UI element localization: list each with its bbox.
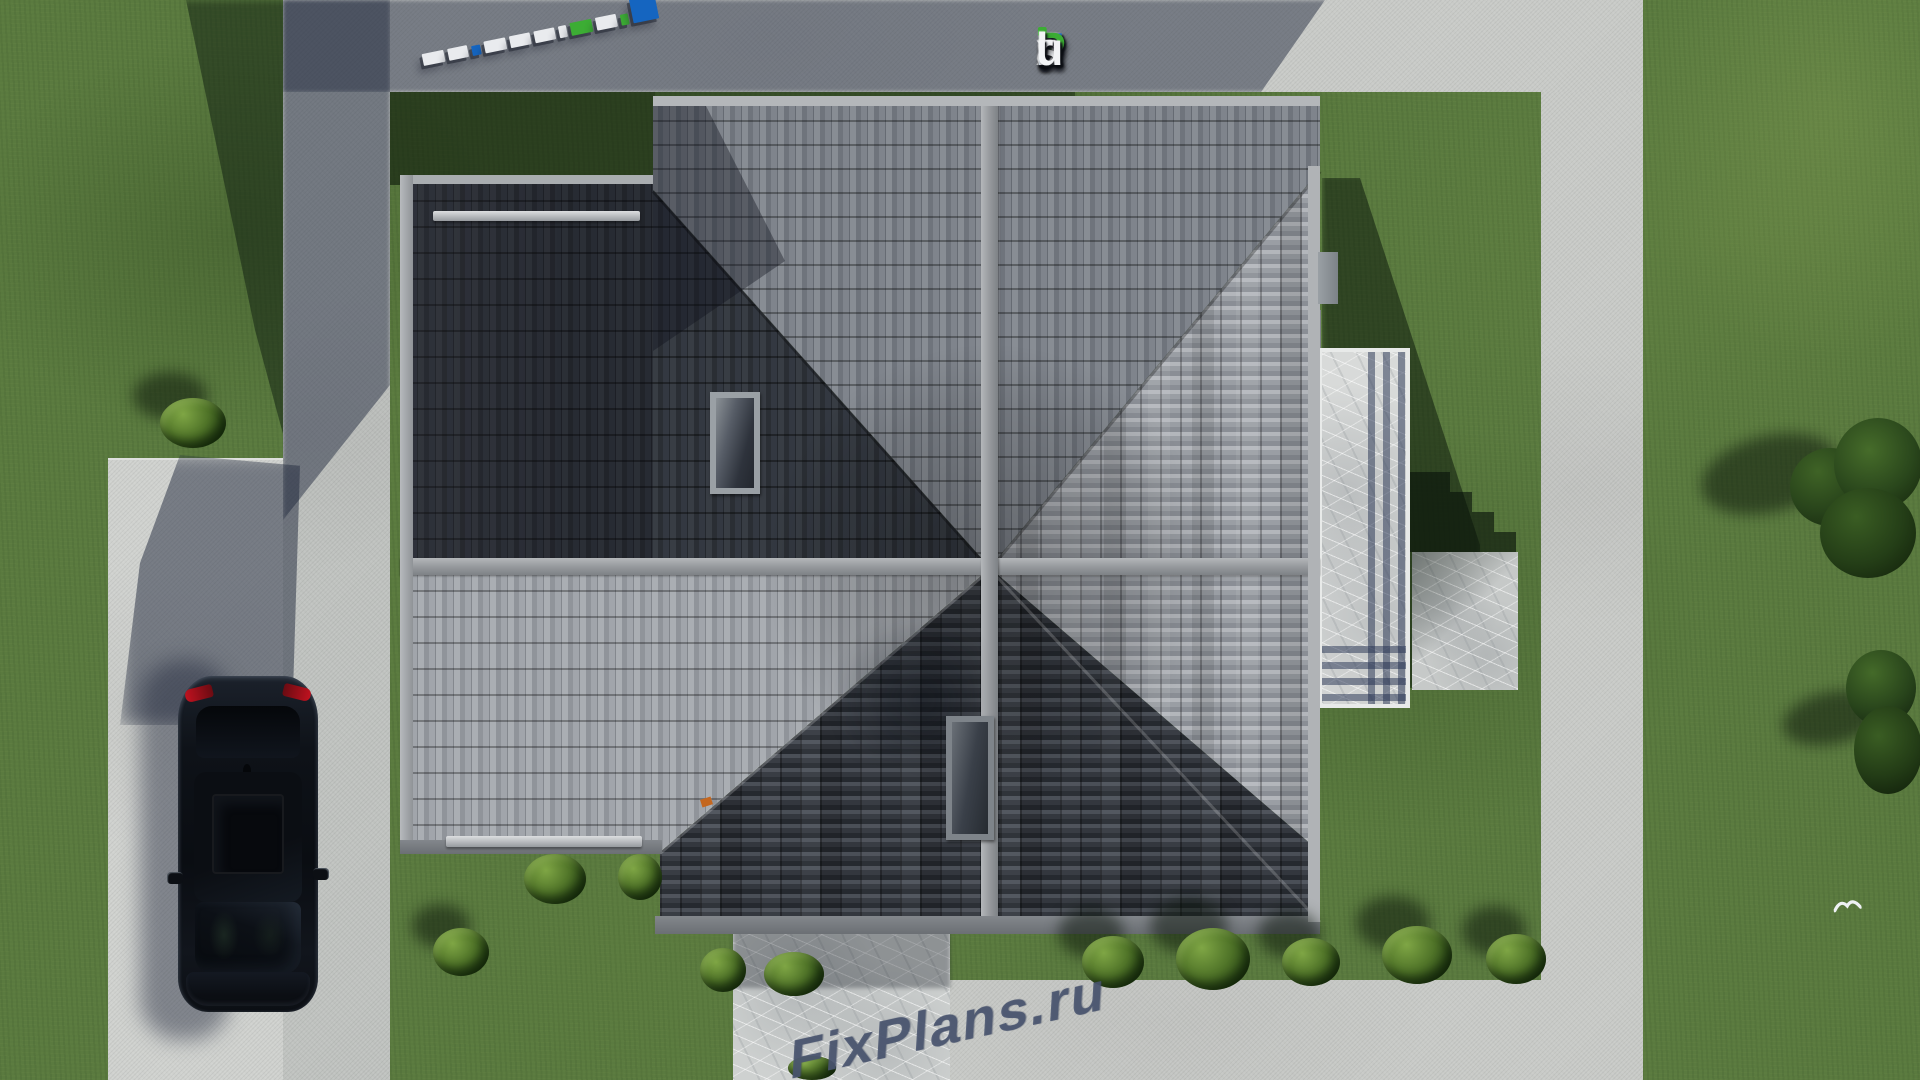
path-right [1541, 92, 1643, 1080]
fascia-north [653, 96, 1320, 106]
bush [700, 948, 746, 992]
car-tree-reflection [253, 912, 287, 958]
bush [1486, 934, 1546, 984]
roof-edge-box [1318, 252, 1338, 304]
snow-guard-upper [433, 211, 640, 221]
patio-shadow [1412, 552, 1518, 690]
terrace-steps-shadow [1322, 646, 1406, 704]
letter-top-block [620, 13, 630, 25]
letter-top-block [471, 44, 482, 56]
ridge-cap-horizontal [400, 558, 1320, 575]
bush [1282, 938, 1340, 986]
tree [1790, 418, 1920, 578]
car-taillight-left [184, 684, 214, 703]
car [178, 676, 318, 1012]
logo-letter: u [1036, 22, 1063, 76]
bush [618, 854, 662, 900]
fascia-wing-top [400, 175, 653, 184]
skylight-1-glass [716, 398, 754, 488]
skylight-chimney-1 [710, 392, 760, 494]
car-rear-window [196, 706, 300, 758]
house-roof [400, 96, 1320, 936]
skylight-2-glass [952, 722, 988, 834]
bush [1176, 928, 1250, 990]
car-roof [194, 772, 302, 902]
terrace [1318, 348, 1410, 708]
snow-guard-lower [446, 836, 642, 847]
bush [1382, 926, 1452, 984]
tree [1846, 650, 1920, 796]
car-sunroof [212, 794, 284, 874]
fascia-wing-left [400, 175, 413, 854]
letter-top-block [558, 25, 568, 38]
site-plan-render: FıxPlans.ru FixPlans.ru FixPlans.ru [0, 0, 1920, 1080]
car-tree-reflection [209, 910, 239, 960]
car-mirror-right [313, 868, 329, 880]
bush [160, 398, 226, 448]
skylight-chimney-2 [946, 716, 994, 840]
tree-foliage [1854, 706, 1920, 794]
car-mirror-left [167, 872, 183, 884]
patio [1412, 552, 1518, 690]
car-hood [186, 972, 310, 1006]
bush [433, 928, 489, 976]
bush [524, 854, 586, 904]
tree-foliage [1820, 488, 1916, 578]
car-windshield [195, 902, 301, 974]
